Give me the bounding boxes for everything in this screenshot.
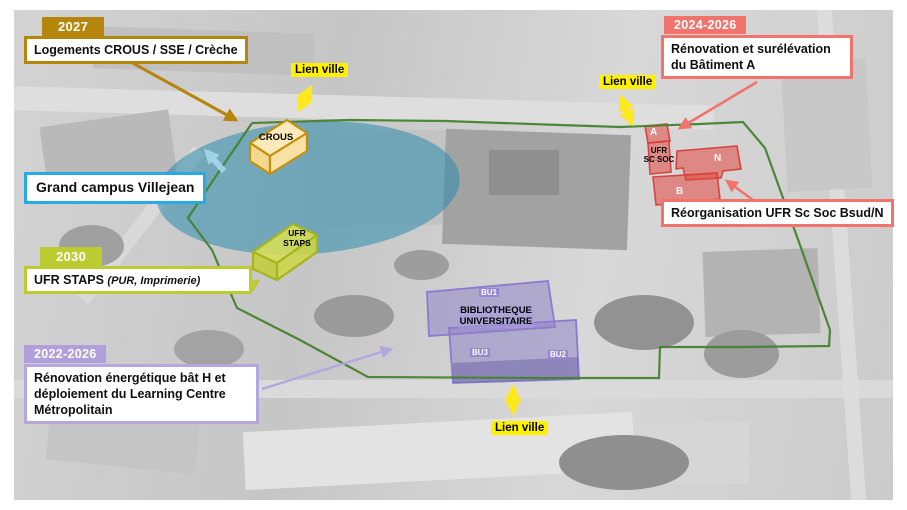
staps-callout-detail: (PUR, Imprimerie) [107,275,200,287]
campus-map-slide: 2027 Logements CROUS / SSE / Crèche Gran… [0,0,907,510]
badge-2024-2026: 2024-2026 [664,16,746,34]
badge-2027: 2027 [42,17,104,36]
photo-trees [704,330,779,378]
photo-building [703,248,821,337]
photo-trees [594,295,694,350]
library-name-label: BIBLIOTHEQUE UNIVERSITAIRE [448,306,544,328]
library-name-line2: UNIVERSITAIRE [458,317,535,328]
campus-callout: Grand campus Villejean [24,172,206,204]
photo-trees [174,330,244,368]
ufr-sc-soc-label-line2: SC SOC [638,155,680,164]
lien-ville-label-south: Lien ville [491,421,548,435]
crous-building-label: CROUS [252,133,300,144]
bu2-label: BU2 [548,350,568,359]
learning-callout: Rénovation énergétique bât H et déploiem… [24,364,259,424]
staps-building-label: UFR STAPS [275,229,319,249]
photo-trees [394,250,449,280]
building-n-label: N [714,153,721,165]
ufr-sc-soc-label-line1: UFR [638,146,680,155]
building-b-label: B [676,186,683,198]
batiment-a-callout: Rénovation et surélévation du Bâtiment A [661,35,853,79]
bu1-label: BU1 [479,288,499,297]
photo-trees [314,295,394,337]
staps-callout: UFR STAPS (PUR, Imprimerie) [24,266,252,294]
staps-building-label-line2: STAPS [275,239,319,249]
lien-ville-label-ne: Lien ville [599,75,656,89]
building-a-label: A [650,127,657,139]
photo-trees [559,435,689,490]
aerial-photo [14,10,893,500]
crous-callout: Logements CROUS / SSE / Crèche [24,36,248,64]
ufr-sc-soc-label: UFR SC SOC [638,146,680,164]
staps-callout-title: UFR STAPS [34,273,104,287]
bu3-label: BU3 [470,348,490,357]
badge-2030: 2030 [40,247,102,266]
sc-soc-callout: Réorganisation UFR Sc Soc Bsud/N [661,199,894,227]
photo-building [304,130,454,225]
lien-ville-label-nw: Lien ville [291,63,348,77]
badge-2022-2026: 2022-2026 [24,345,106,363]
photo-building [489,150,559,195]
